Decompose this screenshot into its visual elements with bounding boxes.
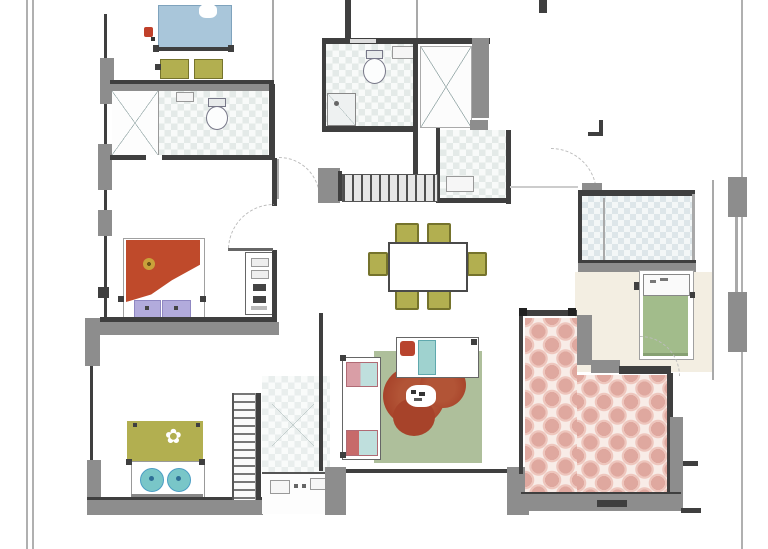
sink [176, 92, 194, 102]
dresser [245, 252, 274, 315]
wall-tick [690, 292, 695, 298]
wall [322, 126, 418, 132]
wall-segment [577, 315, 592, 365]
fixture [446, 176, 474, 192]
wall [256, 393, 261, 500]
sofa-cushion-red [400, 341, 415, 356]
fixture-dot [294, 484, 298, 488]
wall [319, 313, 323, 471]
decor-red [144, 27, 153, 37]
wall-mark [599, 120, 603, 136]
wall-line [692, 194, 695, 266]
wall-segment [728, 292, 747, 352]
shower-line [328, 94, 355, 125]
dining-table [388, 242, 468, 292]
wall-segment [472, 38, 489, 118]
divider-line [603, 198, 605, 260]
toilet [206, 106, 228, 130]
wall-stub [539, 0, 547, 13]
counter-unit [342, 174, 438, 202]
bench [160, 59, 189, 79]
sofa-pillow [346, 362, 378, 387]
wall-segment [98, 210, 112, 236]
wall-tick [153, 45, 159, 52]
wardrobe-cross-line [112, 91, 158, 155]
wall [110, 155, 275, 160]
wall-segment [318, 168, 340, 203]
window-gap [350, 39, 376, 43]
doormat [270, 480, 290, 494]
wall-post [325, 467, 346, 515]
wall [345, 469, 509, 473]
blanket-flower: ✿ [165, 426, 189, 450]
shower [327, 93, 356, 126]
wall-stub [345, 0, 351, 40]
wall-tick [683, 461, 698, 466]
wall-segment [728, 177, 747, 217]
wardrobe-x [112, 91, 159, 155]
pillow-dot [174, 306, 178, 310]
wall-segment [591, 360, 620, 373]
wall [506, 130, 511, 204]
wall-tick [471, 339, 477, 345]
wall [436, 198, 511, 203]
drawer [251, 306, 267, 310]
pillow-dot [145, 306, 149, 310]
bathroom-tiles [582, 196, 692, 262]
wardrobe-cross-line [421, 47, 471, 127]
wall-tick [228, 45, 234, 52]
dining-chair [368, 252, 388, 276]
pillow-mark [660, 278, 668, 281]
wall-tick [126, 459, 132, 465]
page-border-left-outer [26, 0, 28, 549]
dining-chair [467, 252, 487, 276]
wall-segment [98, 144, 112, 190]
sketch-dot [419, 392, 425, 396]
bench [194, 59, 223, 79]
sofa-pillow [346, 430, 378, 456]
dining-chair [395, 289, 419, 310]
drawer-dark [253, 284, 266, 291]
wall-tick [196, 423, 200, 427]
drawer-dark [253, 296, 266, 303]
terrace-tiles-main [577, 375, 668, 496]
page-border-right [741, 0, 743, 549]
drawer [251, 270, 269, 279]
wardrobe-x [420, 46, 472, 128]
pillow-dot [149, 476, 154, 481]
fixture-dot [302, 484, 306, 488]
stairs [232, 393, 256, 500]
dining-chair [395, 223, 419, 244]
bed-headboard [157, 47, 231, 51]
sofa-cushion-teal [418, 340, 436, 375]
wall-tick [133, 423, 137, 427]
wall-line [712, 180, 714, 380]
toilet [363, 58, 386, 84]
wall-tick [519, 308, 527, 316]
wall [110, 84, 274, 91]
fixture [310, 478, 326, 490]
floor-plan: ✿ [0, 0, 768, 549]
wall [619, 366, 671, 374]
wall-tick [340, 355, 346, 361]
wall-tick [340, 452, 346, 458]
door-leaf [277, 159, 279, 199]
decor-dot [151, 37, 155, 41]
wall-tick [681, 508, 701, 513]
door-gap [146, 155, 162, 160]
wall [85, 322, 279, 335]
pillow-dot [176, 476, 181, 481]
sketch-dot [411, 390, 416, 394]
wall [272, 250, 277, 322]
cushion-sketch [406, 385, 436, 407]
sketch-dot [414, 398, 422, 401]
floor-cross-mark [272, 404, 314, 446]
wall-line [272, 0, 274, 84]
wall-tick [200, 296, 206, 302]
sink [392, 46, 414, 59]
cross-line [272, 404, 314, 446]
pillow-mark [650, 280, 656, 283]
wall-tick [118, 296, 124, 302]
wall [87, 500, 263, 515]
decor-medallion [143, 258, 155, 270]
wall-tick [634, 282, 639, 290]
wall-tick [597, 500, 627, 507]
drawer [251, 258, 269, 267]
wall-tick [199, 459, 205, 465]
wall-tick [568, 308, 576, 316]
dining-chair [427, 289, 451, 310]
page-border-left-inner [32, 0, 34, 549]
dining-chair [427, 223, 451, 244]
shower-drain [334, 101, 339, 106]
terrace-tiles-strip [525, 318, 577, 496]
wall-tick [98, 287, 109, 298]
wall [519, 312, 523, 474]
double-bed-blue [158, 5, 232, 51]
bed-pillow [199, 4, 217, 18]
window-line [735, 217, 738, 293]
wall [269, 84, 275, 160]
wall-line [416, 0, 418, 40]
wall-tick [155, 64, 161, 70]
